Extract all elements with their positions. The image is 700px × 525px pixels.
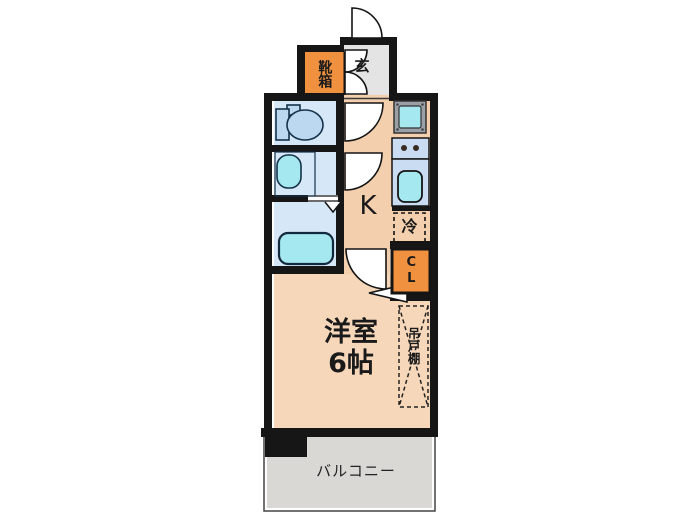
- wall-outer-left: [264, 93, 272, 430]
- entrance-label: 玄: [350, 58, 374, 76]
- pan-screw: [421, 103, 424, 106]
- washer-pan-basin: [399, 106, 421, 128]
- entrance-door-arc-icon: [352, 8, 382, 38]
- wall-bath-room: [265, 266, 344, 274]
- refrigerator-label: 冷: [400, 218, 419, 237]
- stove-icon: [392, 138, 429, 159]
- burner-dot: [401, 145, 407, 151]
- kitchen-counter: [392, 138, 429, 206]
- floorplan-canvas: 玄 靴箱 K 冷 CL 洋室 6帖 吊戸棚 バルコニー: [0, 0, 700, 525]
- wall-entrance-right: [389, 37, 397, 101]
- wall-top-left: [264, 93, 344, 101]
- wall-shoebox-left: [297, 45, 305, 95]
- washer-pan-icon: [394, 101, 426, 133]
- kitchen-label: K: [350, 192, 386, 222]
- western-room-name-label: 洋室: [295, 318, 407, 348]
- closet-label: CL: [403, 254, 419, 288]
- kitchen-sink-icon: [398, 171, 422, 202]
- hanging-cupboard-label: 吊戸棚: [405, 320, 421, 372]
- shoe-cabinet-label: 靴箱: [315, 54, 333, 94]
- pan-screw: [396, 128, 399, 131]
- floorplan-drawing: [0, 0, 700, 525]
- washbasin-icon: [277, 155, 301, 188]
- toilet-bowl: [287, 110, 323, 140]
- balcony-label: バルコニー: [306, 463, 406, 481]
- bathtub-icon: [279, 233, 333, 264]
- burner-dot: [413, 145, 419, 151]
- pan-screw: [421, 128, 424, 131]
- western-room-size-label: 6帖: [295, 349, 407, 379]
- wall-corridor-left: [336, 101, 344, 268]
- wall-balcony-block: [265, 428, 307, 457]
- wall-toilet-washroom: [272, 145, 338, 152]
- pan-screw: [396, 103, 399, 106]
